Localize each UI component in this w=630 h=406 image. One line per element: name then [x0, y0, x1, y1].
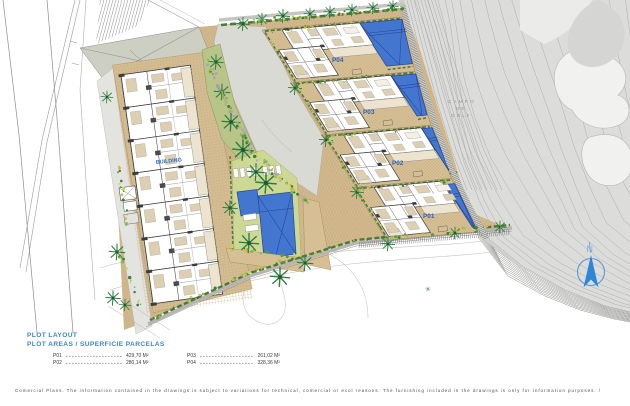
svg-text:328,36 M²: 328,36 M² [257, 360, 280, 366]
svg-text:P03: P03 [187, 353, 196, 359]
svg-text:261,02 M²: 261,02 M² [257, 353, 280, 359]
svg-text:N: N [587, 244, 594, 254]
svg-text:PLOT LAYOUT: PLOT LAYOUT [27, 332, 77, 339]
svg-text:Comercial Plans. The informati: Comercial Plans. The information contain… [15, 388, 601, 393]
svg-text:P01: P01 [53, 353, 62, 359]
svg-text:P04: P04 [332, 57, 344, 64]
svg-text:P02: P02 [53, 360, 62, 366]
svg-text:280,14 M²: 280,14 M² [126, 360, 149, 366]
svg-text:DE: DE [456, 106, 466, 111]
svg-text:429,70 M²: 429,70 M² [126, 353, 149, 359]
svg-text:CAMPO: CAMPO [448, 99, 476, 104]
svg-text:P01: P01 [423, 213, 435, 220]
svg-text:P04: P04 [187, 360, 196, 366]
svg-text:PLOT AREAS / SUPERFICIE PARCEL: PLOT AREAS / SUPERFICIE PARCELAS [27, 341, 165, 348]
svg-text:P03: P03 [363, 109, 375, 116]
svg-text:P02: P02 [392, 160, 404, 167]
svg-text:GOLF: GOLF [451, 113, 472, 118]
